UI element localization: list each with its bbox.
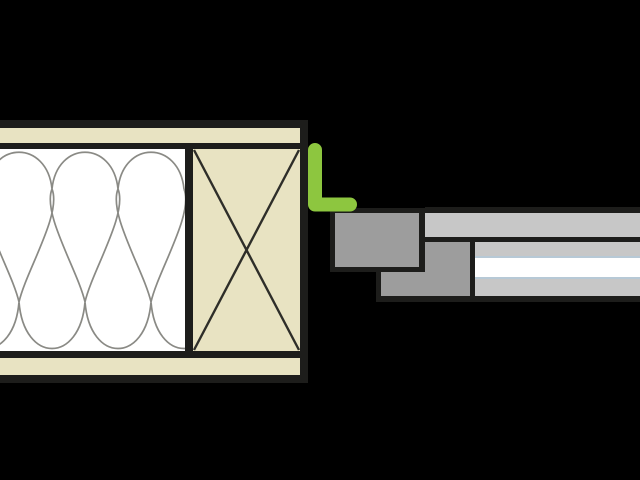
sash-bar — [425, 213, 640, 237]
wall-sheathing-bottom — [0, 358, 300, 375]
wall-sheathing-top — [0, 128, 300, 143]
wall-right-border — [300, 120, 308, 383]
stud-divider-line — [185, 149, 193, 351]
sheathing-top-underline — [0, 143, 300, 149]
wall-top-border — [0, 120, 308, 128]
glass-pane — [475, 258, 640, 277]
glazing-spacer-top — [475, 242, 640, 256]
sheathing-bottom-overline — [0, 351, 300, 358]
sash-bar-bottom-border — [425, 237, 640, 242]
glazing-bottom-border — [475, 296, 640, 302]
glass-edge-bottom — [475, 277, 640, 279]
sash-bar-top-border — [425, 207, 640, 213]
construction-detail-diagram — [0, 0, 640, 480]
wall-bottom-border — [0, 375, 308, 383]
diagram-canvas — [0, 0, 640, 480]
glass-edge-top — [475, 256, 640, 258]
insulation-background — [0, 149, 185, 351]
frame-block-outer — [335, 213, 419, 267]
glazing-spacer-bottom — [475, 279, 640, 296]
